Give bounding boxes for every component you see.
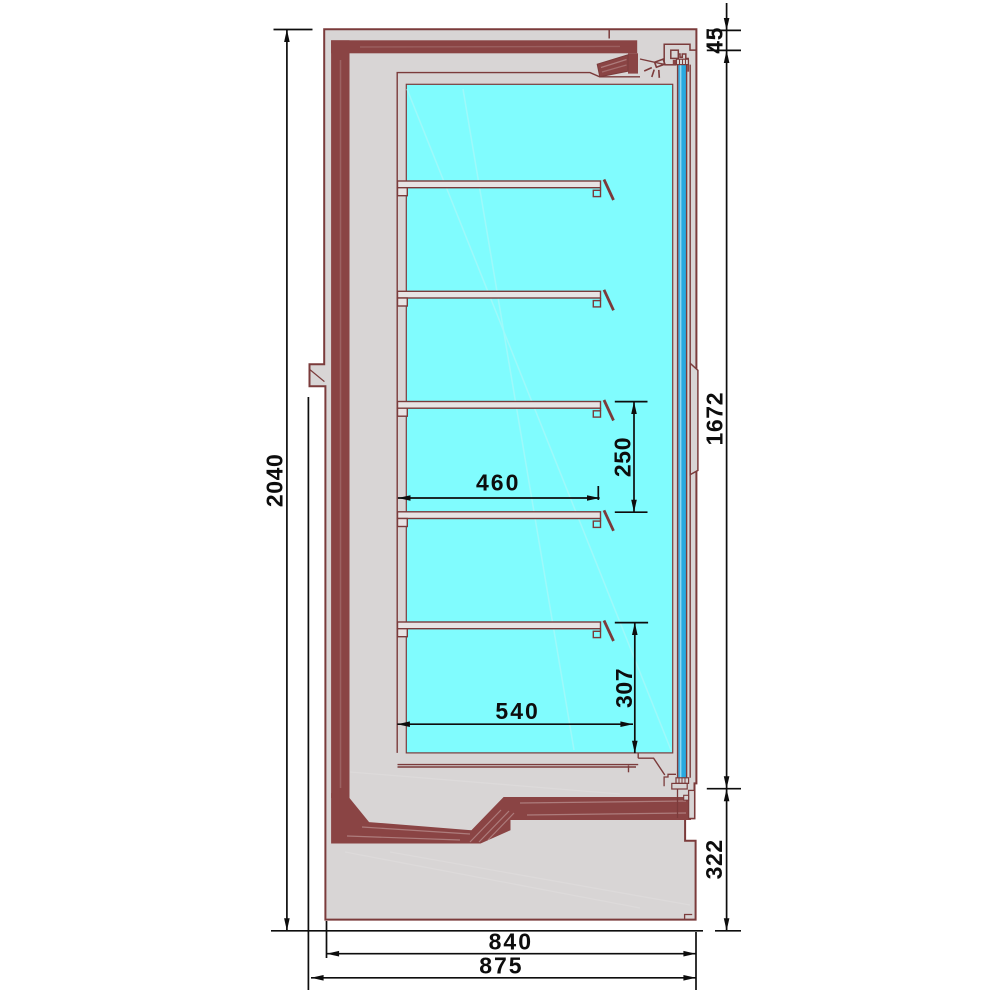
svg-text:460: 460 (476, 470, 520, 496)
svg-text:250: 250 (610, 437, 636, 477)
svg-text:840: 840 (489, 929, 533, 955)
svg-text:540: 540 (495, 698, 539, 724)
svg-text:1672: 1672 (702, 392, 728, 446)
svg-text:2040: 2040 (262, 454, 288, 508)
svg-text:45: 45 (702, 27, 728, 54)
svg-text:322: 322 (701, 839, 727, 879)
svg-text:307: 307 (611, 668, 637, 708)
svg-text:875: 875 (479, 952, 523, 978)
